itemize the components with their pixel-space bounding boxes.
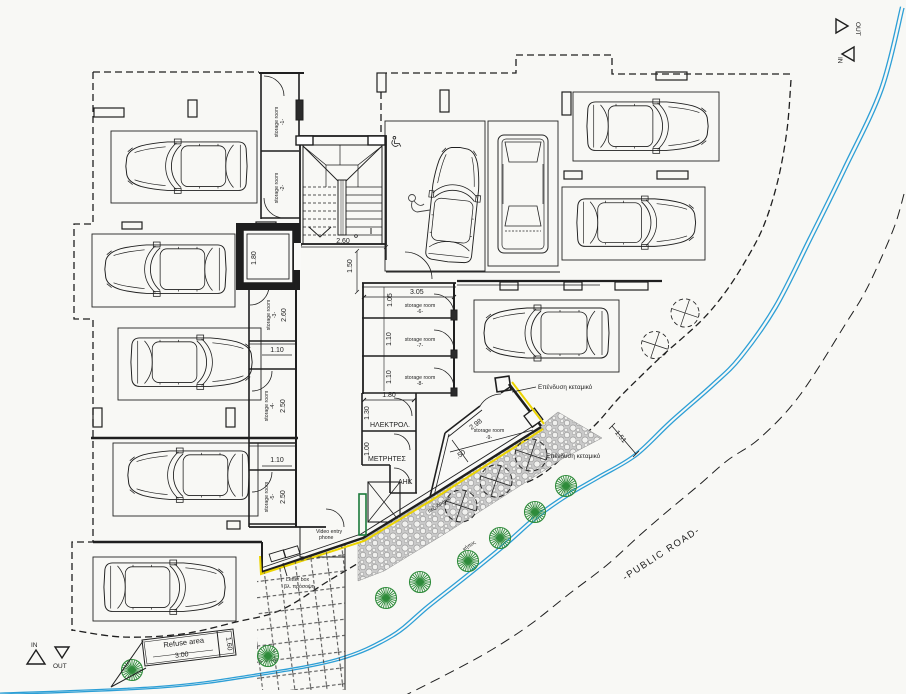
svg-text:ΜΕΤΡΗΤΕΣ: ΜΕΤΡΗΤΕΣ (368, 456, 406, 463)
svg-text:Επένδυση κεταμικό: Επένδυση κεταμικό (538, 383, 593, 391)
svg-text:1.10: 1.10 (386, 370, 393, 384)
svg-text:βλ. πρόσοψη: βλ. πρόσοψη (284, 583, 315, 590)
svg-text:2.60: 2.60 (281, 308, 288, 322)
svg-text:ΑΗΚ: ΑΗΚ (398, 479, 413, 486)
svg-text:-3-: -3- (272, 312, 278, 319)
svg-text:-1-: -1- (280, 119, 286, 126)
svg-text:1.10: 1.10 (270, 457, 284, 464)
svg-text:IN: IN (836, 57, 843, 64)
svg-text:OUT: OUT (854, 22, 861, 36)
svg-text:-8-: -8- (417, 381, 424, 387)
svg-text:-9-: -9- (486, 435, 493, 441)
svg-text:-7-: -7- (417, 343, 424, 349)
svg-text:phone: phone (319, 535, 334, 541)
svg-text:3.05: 3.05 (410, 289, 424, 296)
svg-text:IN: IN (31, 642, 38, 649)
svg-text:1.50: 1.50 (347, 259, 354, 273)
svg-text:Επένδυση κεταμικό: Επένδυση κεταμικό (546, 452, 601, 460)
svg-text:ΗΛΕΚΤΡΟΛ.: ΗΛΕΚΤΡΟΛ. (370, 422, 410, 429)
svg-text:-6-: -6- (417, 309, 424, 315)
svg-text:2.50: 2.50 (280, 490, 287, 504)
svg-text:1.30: 1.30 (364, 406, 371, 420)
svg-text:1.80: 1.80 (382, 392, 396, 399)
svg-text:-4-: -4- (270, 403, 276, 410)
svg-text:1.10: 1.10 (386, 332, 393, 346)
svg-text:2.50: 2.50 (280, 399, 287, 413)
svg-text:1.80: 1.80 (251, 251, 258, 265)
svg-text:1.05: 1.05 (387, 293, 394, 307)
svg-text:-5-: -5- (270, 494, 276, 501)
svg-text:2.60: 2.60 (336, 238, 350, 245)
svg-text:Letter box: Letter box (286, 577, 309, 583)
svg-text:1.00: 1.00 (364, 442, 371, 456)
svg-text:-2-: -2- (280, 185, 286, 192)
svg-text:storage room: storage room (474, 428, 505, 434)
svg-text:1.10: 1.10 (270, 347, 284, 354)
svg-text:OUT: OUT (53, 663, 67, 670)
